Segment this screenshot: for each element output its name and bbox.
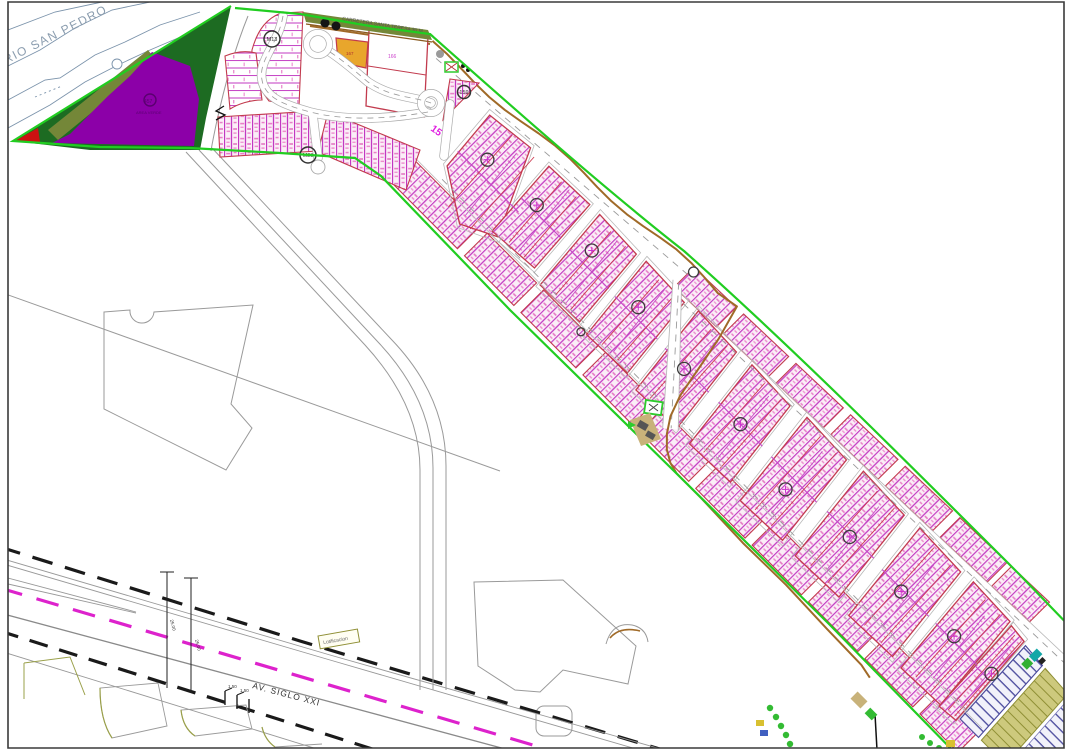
svg-text:1.50: 1.50 [228,684,237,689]
svg-text:M13: M13 [267,37,278,43]
svg-text:1.50: 1.50 [240,688,249,693]
svg-text:457: 457 [144,99,153,105]
svg-text:167: 167 [346,51,354,56]
svg-text:166: 166 [388,54,397,60]
svg-text:AREA VERDE: AREA VERDE [136,110,162,115]
svg-text:159: 159 [459,90,468,96]
